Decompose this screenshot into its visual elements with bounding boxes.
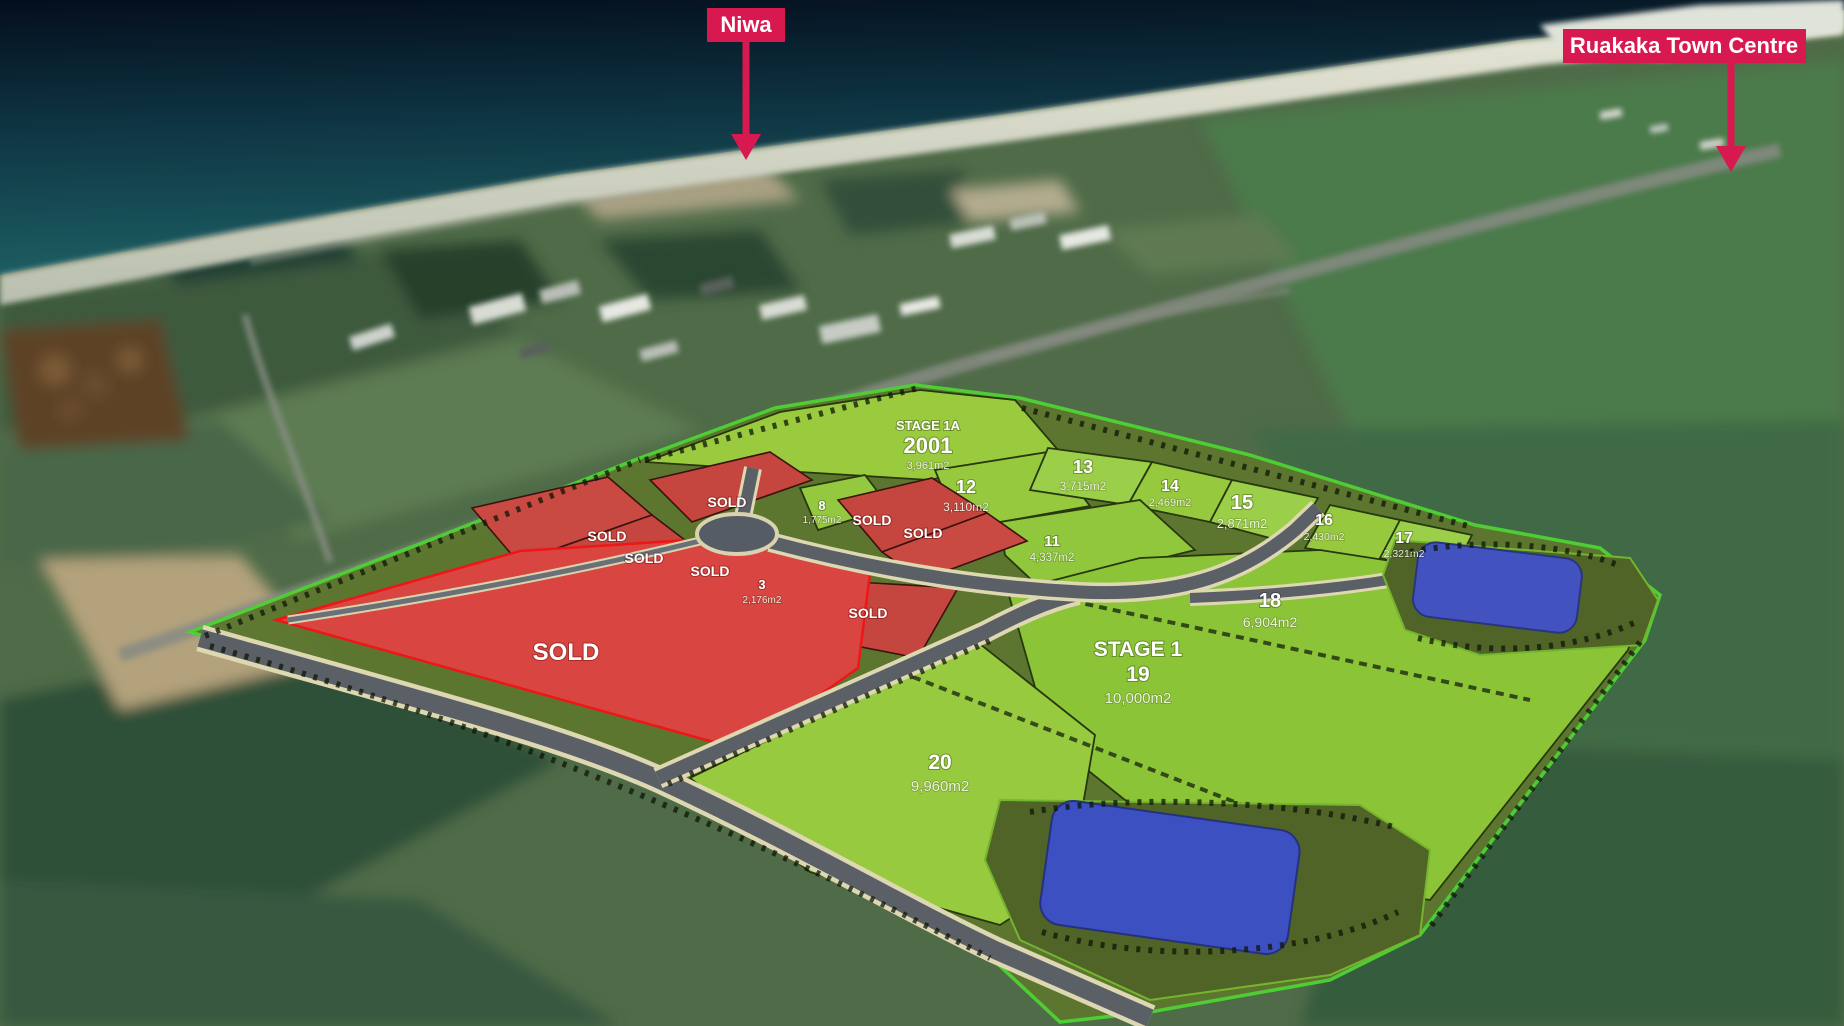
sold-label: SOLD [588,528,627,544]
lot-14-area: 2,469m2 [1149,497,1192,509]
town-centre-label: Ruakaka Town Centre [1570,33,1798,58]
lot-8-number: 8 [818,498,825,513]
sold-label-large: SOLD [533,639,600,666]
lot-13-number: 13 [1073,457,1093,477]
lot-20-area: 9,960m2 [911,778,969,795]
lot-11-area: 4,337m2 [1030,552,1075,564]
lot-15-number: 15 [1231,492,1253,514]
sold-label: SOLD [625,550,664,566]
lot-16-area: 2,430m2 [1304,531,1345,543]
lot-3-area: 2,176m2 [743,595,782,606]
lot-20-number: 20 [928,751,951,774]
lot-3-number: 3 [758,577,765,592]
stage-1a-area: 3,961m2 [907,460,950,472]
aerial-masterplan-image: STAGE 1A 2001 3,961m2 12 3,110m2 13 3,71… [0,0,1844,1026]
sold-label: SOLD [708,494,747,510]
lot-11-number: 11 [1044,533,1060,550]
sold-label: SOLD [853,512,892,528]
stage-1a-lot-number: 2001 [904,433,953,458]
scene: STAGE 1A 2001 3,961m2 12 3,110m2 13 3,71… [0,0,1844,1026]
niwa-label: Niwa [720,12,772,37]
lot-17-area: 2,321m2 [1384,548,1425,560]
sold-label: SOLD [849,605,888,621]
lot-17-number: 17 [1395,530,1413,547]
lot-12-area: 3,110m2 [943,500,989,514]
lot-18-area: 6,904m2 [1243,614,1298,630]
lot-13-area: 3,715m2 [1060,479,1107,493]
sold-label: SOLD [904,525,943,541]
sold-label: SOLD [691,563,730,579]
roundabout [697,514,777,554]
lot-15-area: 2,871m2 [1217,516,1268,531]
lot-19-area: 10,000m2 [1105,690,1172,707]
lot-18-number: 18 [1259,590,1281,612]
stage-1-title: STAGE 1 [1094,638,1183,661]
stage-1a-title: STAGE 1A [896,418,961,433]
lot-19-number: 19 [1126,663,1149,686]
lot-16-number: 16 [1315,512,1333,529]
lot-12-number: 12 [956,477,976,497]
lot-8-area: 1,775m2 [803,515,842,526]
lot-14-number: 14 [1161,478,1179,495]
